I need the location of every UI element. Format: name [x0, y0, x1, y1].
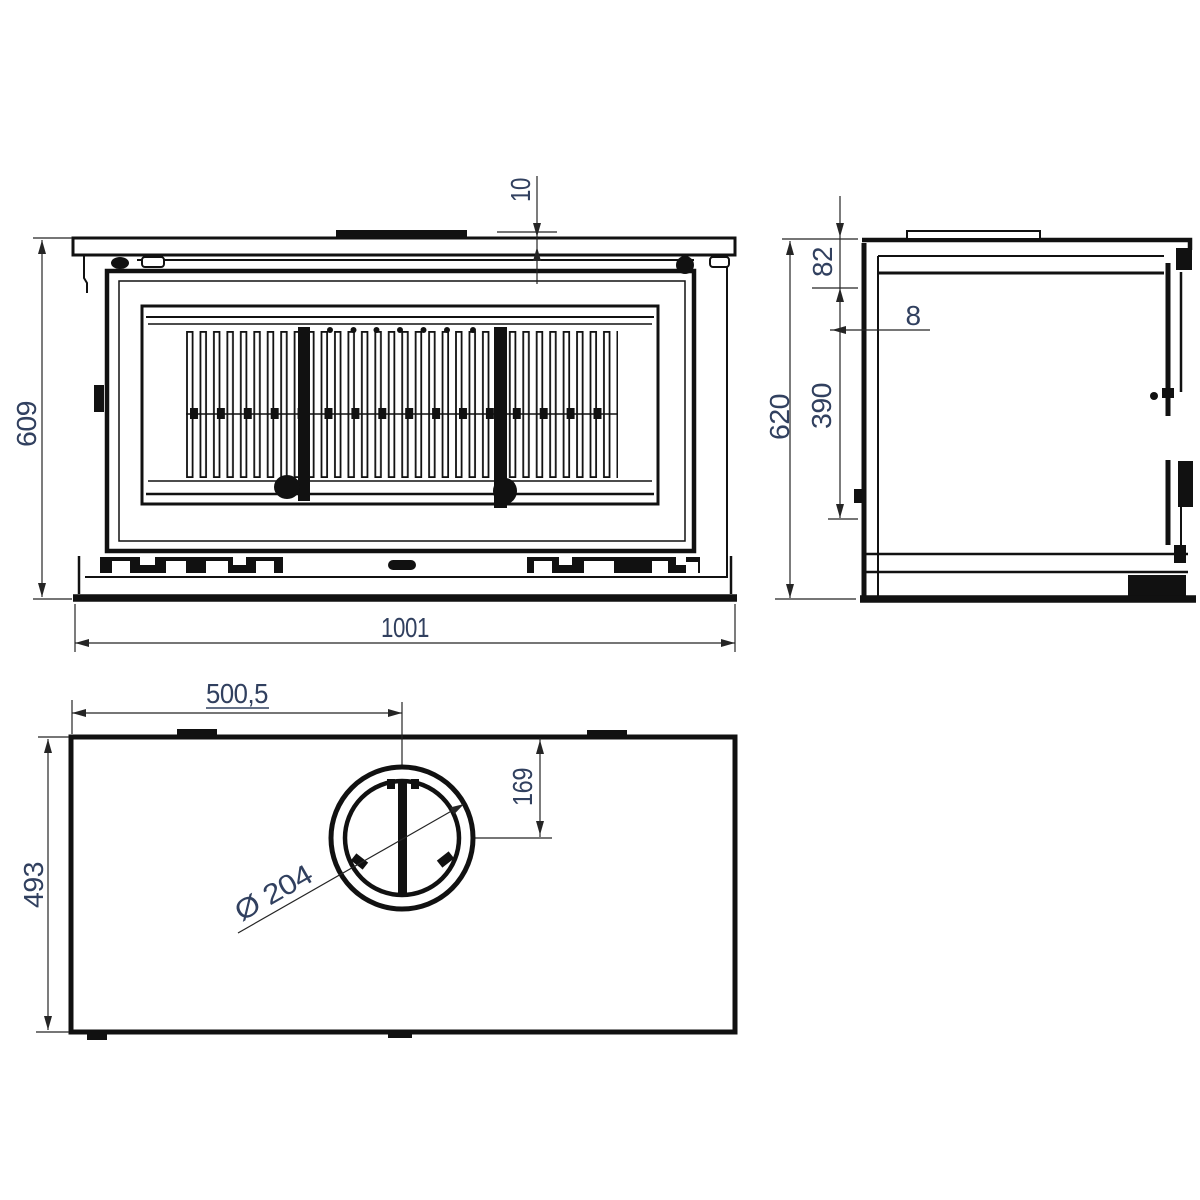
front-top-plate — [73, 230, 735, 255]
top-edge-tab-right — [587, 730, 627, 738]
dim-label-8: 8 — [905, 300, 920, 331]
technical-drawing: 10 609 1001 — [0, 0, 1200, 1200]
flue-damper-bar — [398, 781, 407, 895]
top-foot-left — [87, 1032, 107, 1040]
side-door-handle — [1178, 461, 1193, 507]
dim-label-82: 82 — [807, 247, 838, 277]
front-latch-knob-right — [493, 478, 517, 504]
top-view — [71, 702, 735, 1040]
dim-side-wall-thickness: 8 — [830, 300, 930, 334]
front-hinge-cap-left — [111, 257, 129, 269]
top-edge-tab-left — [177, 729, 217, 737]
side-rear-foot — [1128, 575, 1186, 597]
dim-label-620: 620 — [764, 394, 795, 440]
top-foot-mid — [388, 1031, 412, 1038]
dim-top-flue-center-x: 500,5 — [72, 678, 402, 734]
dim-label-169: 169 — [507, 768, 538, 806]
side-view — [854, 231, 1196, 599]
dim-label-500-5: 500,5 — [206, 678, 268, 709]
dim-label-10: 10 — [505, 178, 536, 202]
top-flue-collar — [331, 767, 473, 909]
dim-label-609: 609 — [11, 401, 42, 447]
dim-top-depth: 493 — [18, 737, 69, 1032]
front-grille-mullion-left — [298, 327, 310, 501]
front-view — [73, 230, 737, 598]
drawing-sheet: 10 609 1001 — [0, 0, 1200, 1200]
front-latch-knob-left — [274, 475, 300, 499]
dim-front-width: 1001 — [75, 604, 735, 652]
dim-label-1001: 1001 — [381, 612, 429, 643]
side-top-plate — [862, 231, 1192, 270]
front-latch-strip — [100, 557, 700, 573]
dim-front-height: 609 — [11, 238, 72, 599]
dim-label-390: 390 — [806, 383, 837, 429]
dim-front-top-plate-thickness: 10 — [497, 176, 557, 284]
front-clip-right — [710, 257, 729, 267]
front-clip-left — [142, 257, 164, 267]
side-body — [854, 243, 1196, 599]
side-front-latch-nub — [854, 489, 863, 503]
dim-label-493: 493 — [18, 862, 49, 908]
dim-side-mid-height: 390 — [806, 288, 858, 519]
front-hinge-bump — [94, 385, 104, 412]
front-hinge-cap-right — [676, 256, 694, 274]
side-door-pin — [1150, 392, 1158, 400]
side-door-edge — [1150, 263, 1193, 563]
front-flue-collar-tab — [336, 230, 467, 239]
dim-side-top-section: 82 — [807, 196, 858, 288]
side-flue-collar-lip — [907, 231, 1040, 239]
